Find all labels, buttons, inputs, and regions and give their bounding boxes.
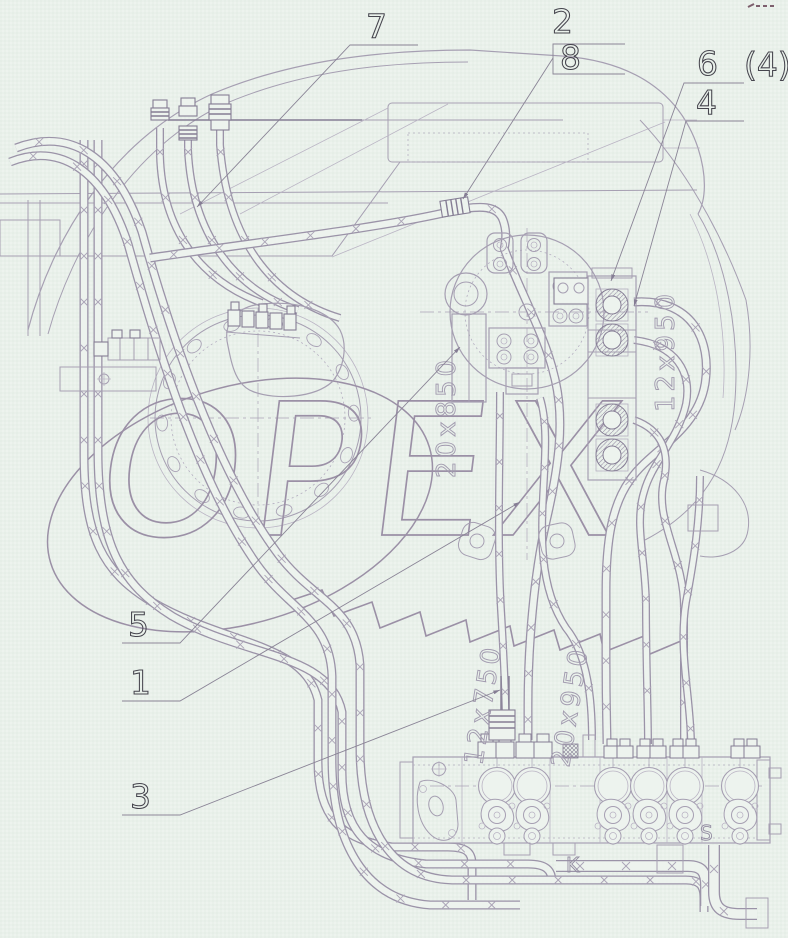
callout-5: 5: [128, 605, 149, 644]
callout-6: 6: [697, 44, 718, 83]
hose-fittings-on-valve: [478, 734, 760, 758]
label-20x850: 20x850: [432, 356, 462, 478]
callout-4: 4: [696, 83, 717, 122]
callout-2: 2: [552, 2, 573, 41]
callout-1: 1: [130, 663, 151, 702]
hydraulic-piping-diagram: ОРЕХ: [0, 0, 788, 938]
corner-artifact: [748, 4, 774, 7]
callout-7: 7: [366, 7, 387, 46]
port-letter-s: S: [700, 821, 713, 845]
label-12x950: 12x950: [651, 290, 681, 412]
port-letter-k: K: [566, 853, 580, 877]
pipe-s-port: [710, 845, 757, 915]
pump-section: [417, 761, 458, 840]
drawing-page: ОРЕХ: [0, 0, 788, 938]
inline-hose-fitting: [440, 197, 470, 217]
manifold-bolt-bank: [226, 302, 300, 338]
callout-4-paren: (4): [744, 45, 788, 84]
valve-sections: [479, 757, 759, 845]
callout-3: 3: [130, 777, 151, 816]
callout-8: 8: [560, 38, 581, 77]
